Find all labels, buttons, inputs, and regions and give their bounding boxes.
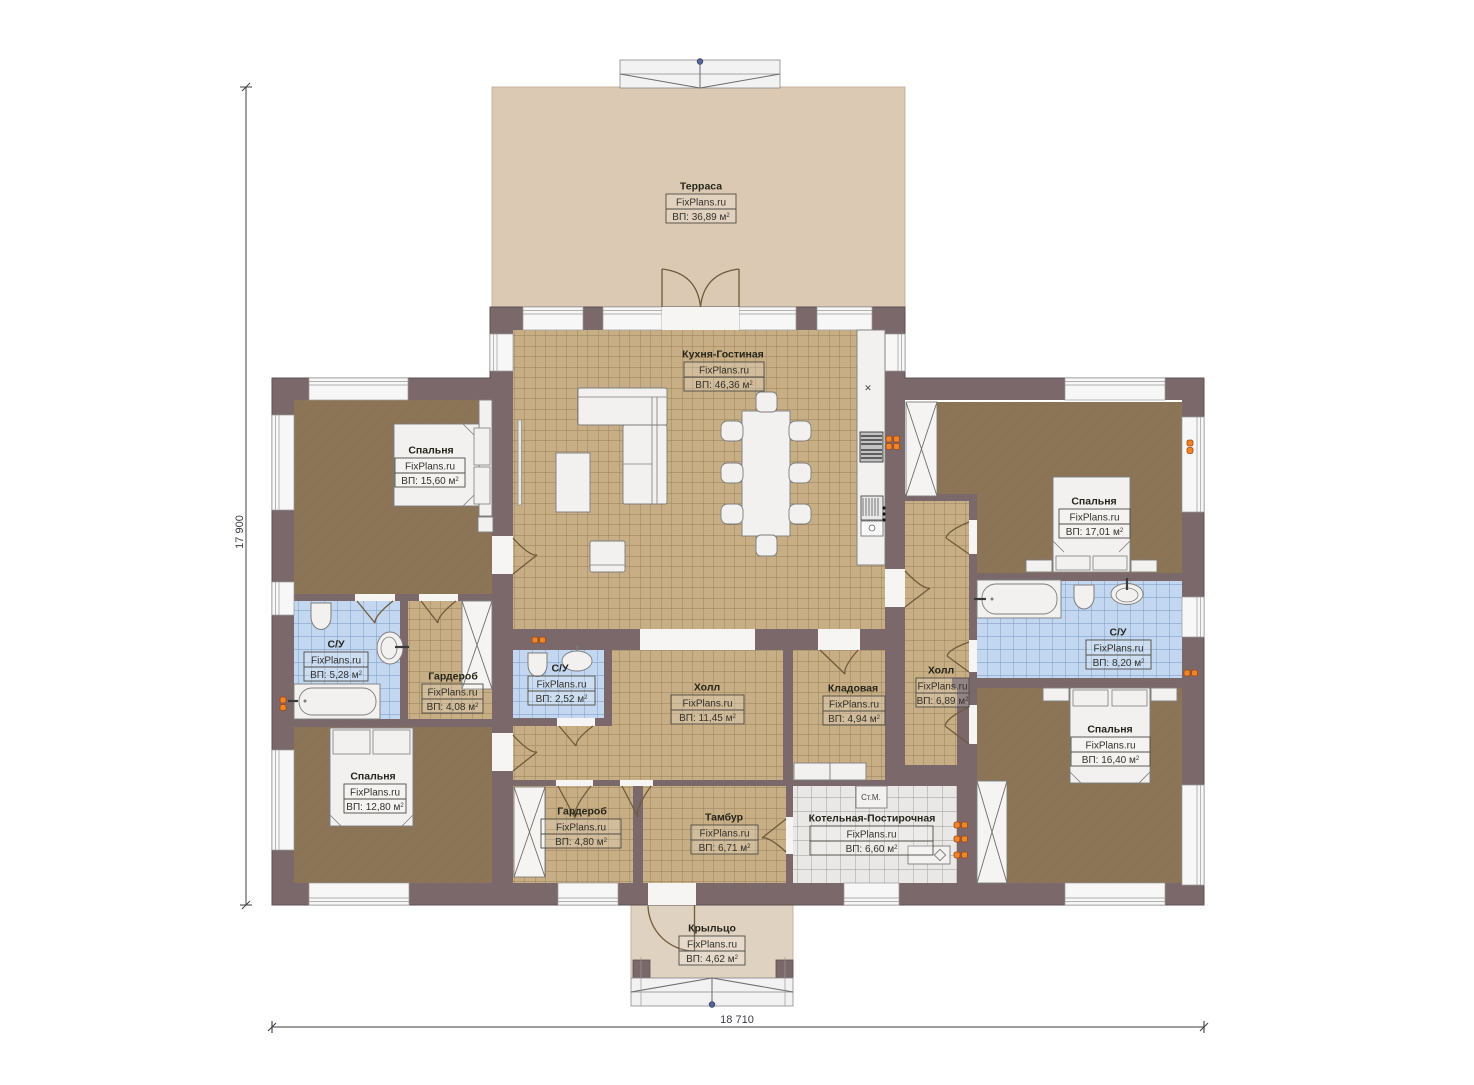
svg-text:FixPlans.ru: FixPlans.ru [676,198,726,209]
svg-text:FixPlans.ru: FixPlans.ru [917,682,967,693]
svg-text:FixPlans.ru: FixPlans.ru [311,656,361,667]
svg-text:Ст.М.: Ст.М. [861,793,881,802]
svg-text:FixPlans.ru: FixPlans.ru [427,688,477,699]
svg-text:Кладовая: Кладовая [828,683,878,695]
svg-text:FixPlans.ru: FixPlans.ru [556,823,606,834]
svg-text:ВП: 36,89 м2: ВП: 36,89 м2 [672,212,730,223]
svg-text:Холл: Холл [928,665,954,677]
svg-text:FixPlans.ru: FixPlans.ru [699,829,749,840]
svg-text:FixPlans.ru: FixPlans.ru [350,788,400,799]
svg-text:ВП: 4,94 м2: ВП: 4,94 м2 [828,714,881,725]
svg-text:Спальня: Спальня [1071,496,1116,508]
svg-text:18 710: 18 710 [720,1014,754,1026]
svg-text:ВП: 17,01 м2: ВП: 17,01 м2 [1066,527,1124,538]
svg-text:FixPlans.ru: FixPlans.ru [536,680,586,691]
svg-text:Гардероб: Гардероб [557,806,607,818]
svg-text:Тамбур: Тамбур [705,812,743,824]
svg-text:FixPlans.ru: FixPlans.ru [846,830,896,841]
svg-text:Кухня-Гостиная: Кухня-Гостиная [682,349,764,361]
svg-text:Котельная-Постирочная: Котельная-Постирочная [809,813,936,825]
svg-text:ВП: 16,40 м2: ВП: 16,40 м2 [1082,755,1140,766]
svg-text:ВП: 46,36 м2: ВП: 46,36 м2 [695,380,753,391]
svg-text:FixPlans.ru: FixPlans.ru [699,366,749,377]
svg-text:FixPlans.ru: FixPlans.ru [682,699,732,710]
svg-text:FixPlans.ru: FixPlans.ru [829,700,879,711]
svg-text:Спальня: Спальня [1087,724,1132,736]
svg-text:ВП: 6,71 м2: ВП: 6,71 м2 [699,843,752,854]
svg-text:FixPlans.ru: FixPlans.ru [1069,513,1119,524]
svg-text:17 900: 17 900 [234,515,246,549]
svg-text:FixPlans.ru: FixPlans.ru [1093,644,1143,655]
svg-text:✕: ✕ [864,383,872,393]
svg-text:Спальня: Спальня [350,771,395,783]
svg-text:С/У: С/У [1109,627,1127,639]
svg-text:Крыльцо: Крыльцо [688,923,736,935]
svg-text:ВП: 11,45 м2: ВП: 11,45 м2 [679,713,736,724]
svg-text:ВП: 6,89 м2: ВП: 6,89 м2 [917,696,970,707]
svg-text:ВП: 2,52 м2: ВП: 2,52 м2 [536,694,589,705]
svg-text:ВП: 8,20 м2: ВП: 8,20 м2 [1093,658,1146,669]
svg-text:ВП: 4,80 м2: ВП: 4,80 м2 [555,837,608,848]
svg-text:Спальня: Спальня [408,445,453,457]
svg-text:FixPlans.ru: FixPlans.ru [405,462,455,473]
svg-text:Холл: Холл [694,682,720,694]
svg-text:ВП: 12,80 м2: ВП: 12,80 м2 [346,802,404,813]
svg-text:ВП: 15,60 м2: ВП: 15,60 м2 [401,476,459,487]
svg-text:FixPlans.ru: FixPlans.ru [1085,741,1135,752]
svg-text:ВП: 5,28 м2: ВП: 5,28 м2 [310,670,363,681]
svg-text:Терраса: Терраса [680,181,722,193]
svg-text:ВП: 6,60 м2: ВП: 6,60 м2 [846,844,899,855]
svg-text:С/У: С/У [327,639,345,651]
svg-text:ВП: 4,08 м2: ВП: 4,08 м2 [427,702,480,713]
svg-text:ВП: 4,62 м2: ВП: 4,62 м2 [686,954,739,965]
svg-text:С/У: С/У [551,663,569,675]
svg-text:Гардероб: Гардероб [428,671,478,683]
svg-text:FixPlans.ru: FixPlans.ru [687,940,737,951]
